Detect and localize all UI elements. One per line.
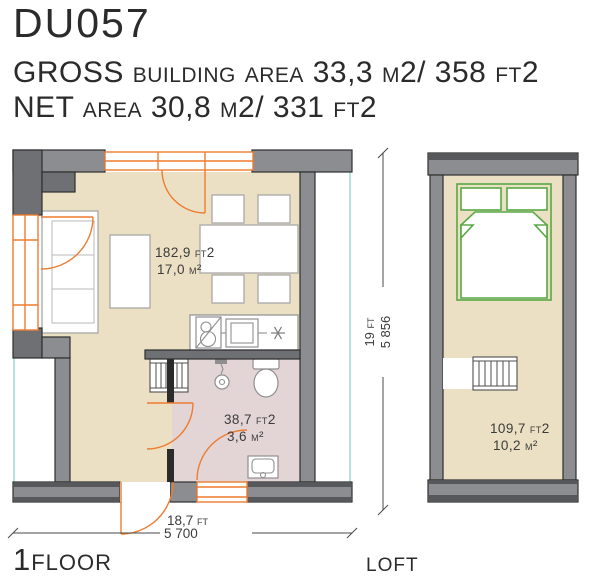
floor1-plan-drawing: 18,7 ft 5 700 182,9 ft2 17,0 m² 38,7 ft2…: [0, 145, 395, 550]
bathroom-area-ft2: 38,7 ft2: [224, 412, 276, 427]
chair: [212, 275, 244, 303]
chair: [258, 195, 290, 223]
height-dim-mm: 5 856: [378, 287, 394, 377]
net-area-text: NET area 30,8 m2/ 331 ft2: [13, 91, 377, 125]
height-dimension-label: 19 ft 5 856: [362, 287, 396, 377]
pillow: [461, 188, 501, 210]
width-dimension: 18,7 ft 5 700: [8, 513, 357, 541]
floor1-label: 1floor: [13, 542, 112, 578]
loft-label: loft: [366, 547, 419, 578]
stair-void: [443, 358, 473, 389]
washbasin-icon: [248, 456, 278, 478]
kitchen-counter: [190, 315, 298, 350]
sofa: [42, 211, 98, 333]
living-room-area-ft2: 182,9 ft2: [155, 245, 215, 260]
width-dim-mm: 5 700: [164, 526, 198, 541]
porch-area: [13, 358, 55, 482]
loft-area-m2: 10,2 m²: [493, 438, 538, 453]
top-window: [105, 152, 253, 170]
height-dim-ft: 19 ft: [362, 287, 378, 377]
chair: [258, 275, 290, 303]
kitchen-sink-icon: [196, 317, 221, 348]
loft-plan-drawing: 109,7 ft2 10,2 m²: [395, 145, 601, 550]
gross-area-text: GROSS building area 33,3 m2/ 358 ft2: [13, 56, 539, 90]
bathroom-area-m2: 3,6 m²: [227, 429, 264, 444]
toilet-icon: [253, 359, 279, 397]
plan-title: DU057: [13, 0, 151, 47]
floor-plan-sheet: DU057 GROSS building area 33,3 m2/ 358 f…: [0, 0, 601, 583]
coffee-table: [110, 235, 150, 308]
loft-area-ft2: 109,7 ft2: [490, 421, 550, 436]
pillow: [507, 188, 547, 210]
chair: [212, 195, 244, 223]
loft-stairs: [473, 357, 517, 390]
living-room-area-m2: 17,0 m²: [157, 262, 202, 277]
dining-table: [200, 225, 298, 273]
